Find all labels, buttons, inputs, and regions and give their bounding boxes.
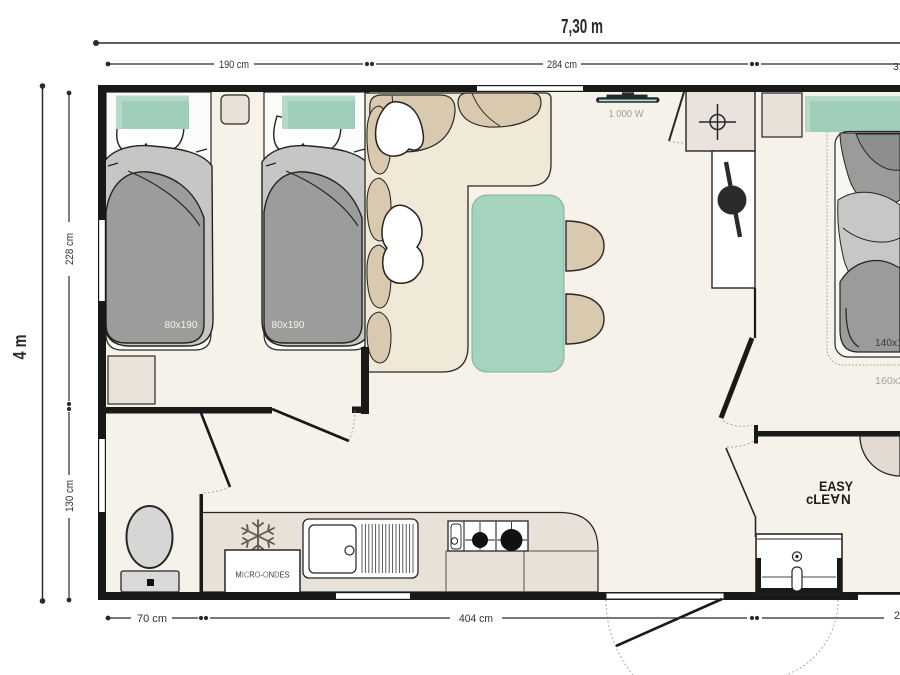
svg-text:404 cm: 404 cm [459,613,493,625]
svg-text:140x190: 140x190 [875,338,900,349]
svg-text:80x190: 80x190 [272,320,305,331]
svg-text:130 cm: 130 cm [64,480,76,512]
svg-text:4 m: 4 m [10,335,30,360]
svg-text:80x190: 80x190 [165,320,198,331]
svg-text:N: N [841,492,851,507]
svg-text:284 cm: 284 cm [547,59,577,71]
svg-text:7,30 m: 7,30 m [561,16,603,38]
svg-text:3,9: 3,9 [893,61,900,73]
svg-text:1 000 W: 1 000 W [609,108,644,120]
svg-text:228 cm: 228 cm [64,233,76,265]
svg-text:70 cm: 70 cm [137,613,167,625]
svg-text:190 cm: 190 cm [219,59,249,71]
svg-text:MICRO-ONDES: MICRO-ONDES [236,570,290,580]
svg-text:160x200: 160x200 [875,376,900,387]
svg-text:cLE: cLE [806,492,830,507]
svg-text:A: A [830,491,840,506]
svg-text:2,2: 2,2 [894,610,900,622]
